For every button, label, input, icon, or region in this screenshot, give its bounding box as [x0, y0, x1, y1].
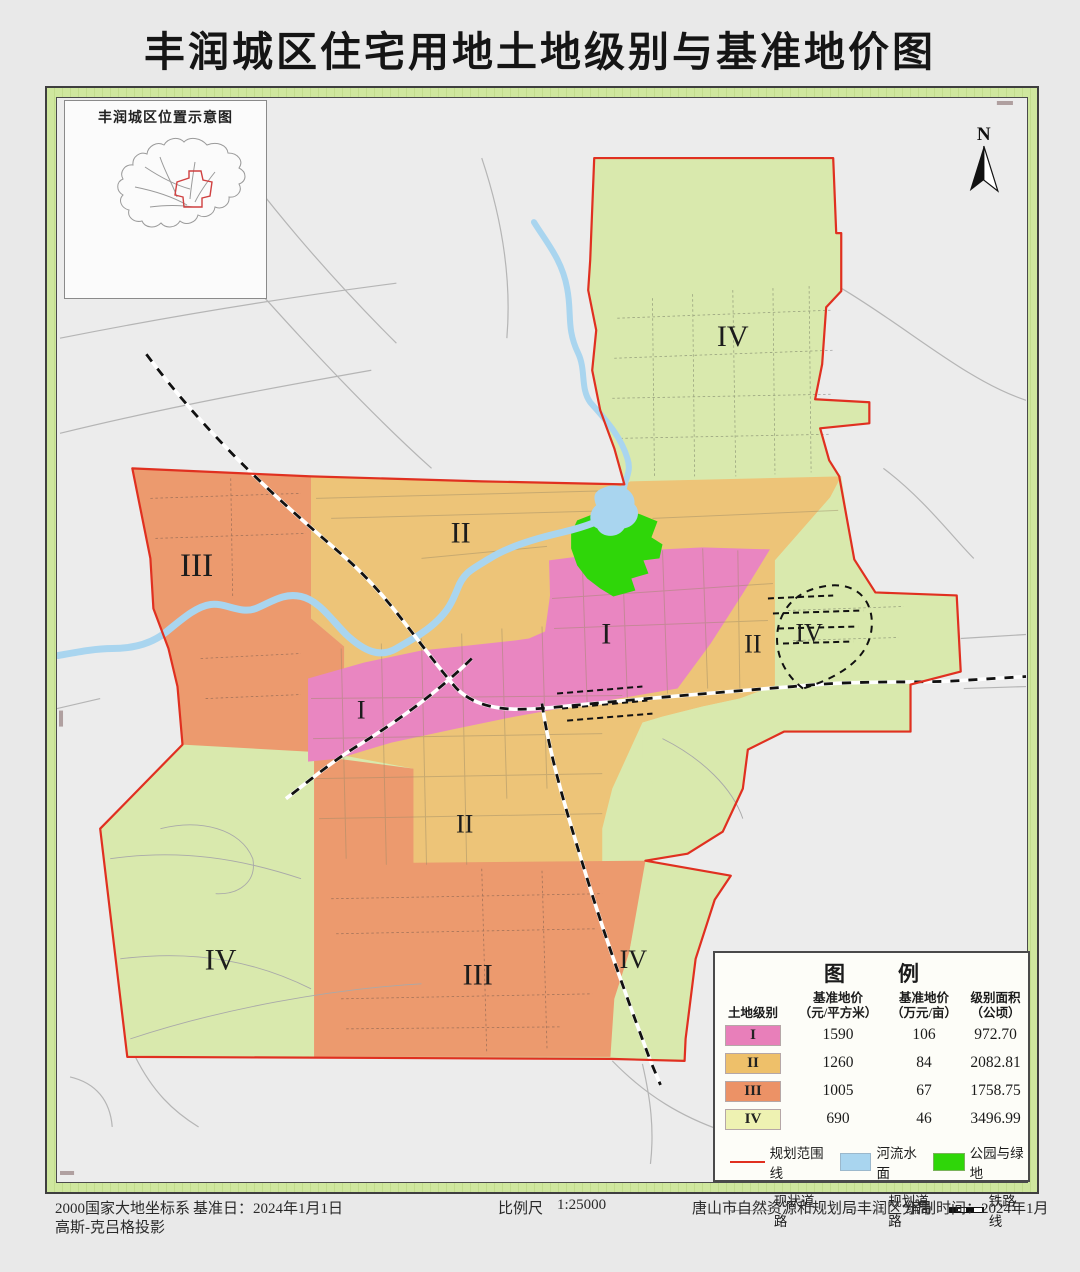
inset-location-map: 丰润城区位置示意图: [64, 100, 267, 299]
inset-title: 丰润城区位置示意图: [65, 107, 266, 127]
page: { "page_title": "丰润城区住宅用地土地级别与基准地价图", "i…: [0, 0, 1080, 1272]
legend-header-price-sqm: 基准地价（元/平方米）: [791, 991, 885, 1021]
grade2-price-mu: 84: [885, 1054, 963, 1072]
grade1-swatch: I: [725, 1025, 781, 1046]
grade3-price-sqm: 1005: [791, 1082, 885, 1100]
grade2-price-sqm: 1260: [791, 1054, 885, 1072]
zone-label-i-6: I: [357, 696, 366, 725]
legend-row-grade3: III 1005 67 1758.75: [715, 1077, 1028, 1105]
legend-row-grade1: I 1590 106 972.70: [715, 1021, 1028, 1049]
zone-label-iv-5: IV: [795, 619, 823, 648]
base-date: 基准日：2024年1月1日: [193, 1197, 343, 1218]
legend-header-area: 级别面积（公顷）: [963, 991, 1028, 1021]
zone-label-ii-7: II: [456, 810, 473, 839]
grade4-price-sqm: 690: [791, 1110, 885, 1128]
coordinate-system-note: 2000国家大地坐标系: [55, 1197, 190, 1218]
compile-time: 编制时间：2024年1月: [906, 1197, 1049, 1218]
legend-row-grade4: IV 690 46 3496.99: [715, 1105, 1028, 1133]
boundary-line-label: 规划范围线: [770, 1142, 828, 1182]
water-swatch-icon: [840, 1153, 871, 1171]
grade4-area: 3496.99: [963, 1110, 1028, 1128]
legend-panel: 图 例 土地级别 基准地价（元/平方米） 基准地价（万元/亩） 级别面积（公顷）…: [713, 951, 1030, 1182]
zone-label-i-3: I: [601, 616, 611, 650]
zone-label-iv-0: IV: [717, 319, 749, 353]
agency-name: 唐山市自然资源和规划局丰润区分局: [692, 1197, 932, 1218]
park-swatch-icon: [933, 1153, 964, 1171]
boundary-line-icon: [730, 1161, 765, 1163]
north-label: N: [977, 124, 991, 145]
zone-label-iv-10: IV: [620, 945, 648, 974]
projection-note: 高斯-克吕格投影: [55, 1216, 165, 1237]
grade2-area: 2082.81: [963, 1054, 1028, 1072]
scale-label: 比例尺: [498, 1197, 543, 1218]
legend-row-grade2: II 1260 84 2082.81: [715, 1049, 1028, 1077]
water-label: 河流水面: [876, 1142, 923, 1182]
zone-label-ii-4: II: [744, 630, 761, 659]
grade3-swatch: III: [725, 1081, 781, 1102]
grade4-swatch: IV: [725, 1109, 781, 1130]
inset-map-svg: [65, 127, 266, 287]
zone-label-iii-2: III: [180, 548, 213, 584]
grade3-price-mu: 67: [885, 1082, 963, 1100]
page-title: 丰润城区住宅用地土地级别与基准地价图: [0, 18, 1080, 78]
grade3-area: 1758.75: [963, 1082, 1028, 1100]
legend-title: 图 例: [715, 958, 1028, 988]
grade1-price-sqm: 1590: [791, 1026, 885, 1044]
zone-label-ii-1: II: [451, 515, 471, 549]
legend-header-row: 土地级别 基准地价（元/平方米） 基准地价（万元/亩） 级别面积（公顷）: [715, 991, 1028, 1021]
legend-header-price-mu: 基准地价（万元/亩）: [885, 991, 963, 1021]
legend-symbols-row1: 规划范围线 河流水面 公园与绿地: [730, 1142, 1028, 1182]
zone-label-iii-8: III: [463, 958, 493, 992]
grade1-area: 972.70: [963, 1026, 1028, 1044]
park-label: 公园与绿地: [970, 1142, 1028, 1182]
grade4-price-mu: 46: [885, 1110, 963, 1128]
scale-value: 1:25000: [557, 1197, 606, 1214]
grade2-swatch: II: [725, 1053, 781, 1074]
zone-label-iv-9: IV: [205, 943, 237, 977]
legend-header-grade: 土地级别: [715, 1006, 791, 1021]
grade1-price-mu: 106: [885, 1026, 963, 1044]
